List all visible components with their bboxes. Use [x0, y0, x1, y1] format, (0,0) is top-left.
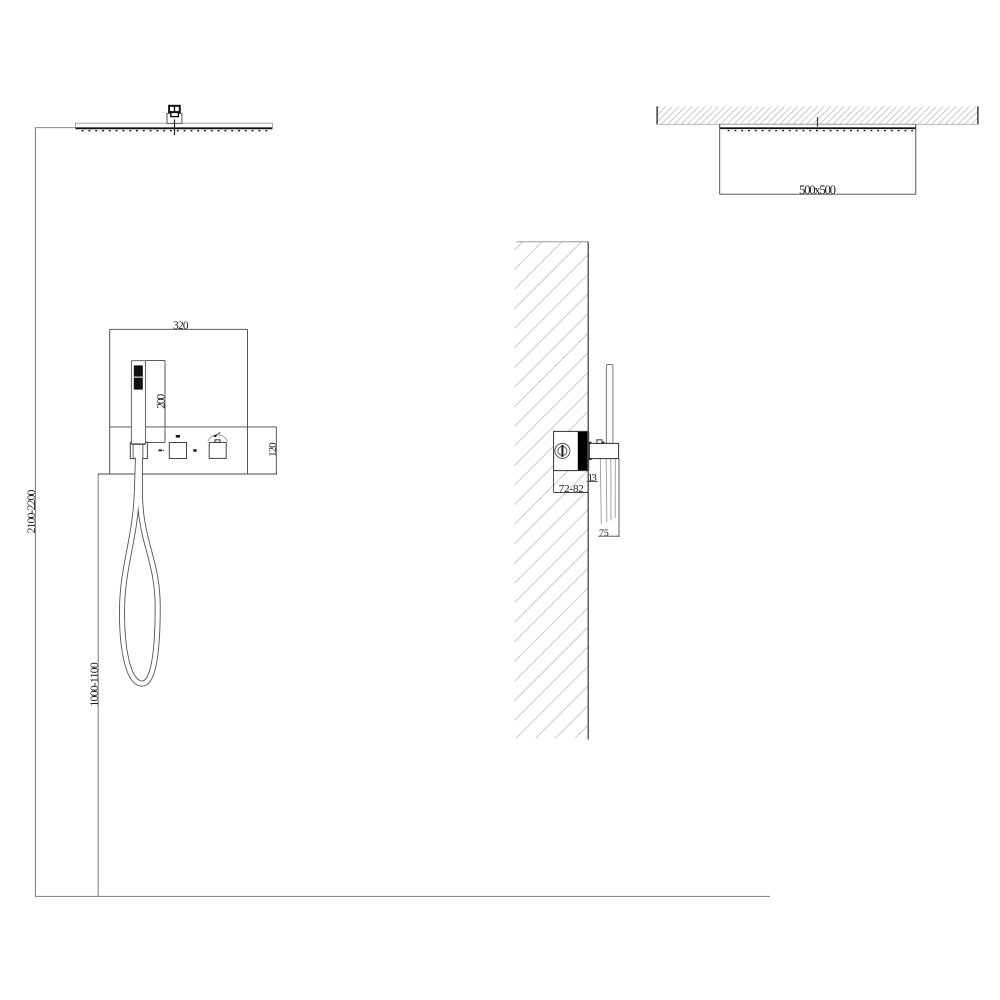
svg-text:200: 200: [154, 394, 168, 409]
svg-text:1000-1100: 1000-1100: [87, 662, 101, 706]
svg-text:320: 320: [173, 320, 189, 332]
svg-text:120: 120: [267, 442, 279, 457]
svg-text:72-82: 72-82: [559, 483, 584, 495]
svg-text:2100-2200: 2100-2200: [24, 490, 38, 534]
svg-text:500x500: 500x500: [799, 183, 836, 197]
svg-text:13: 13: [588, 472, 598, 484]
svg-text:75: 75: [599, 528, 609, 539]
